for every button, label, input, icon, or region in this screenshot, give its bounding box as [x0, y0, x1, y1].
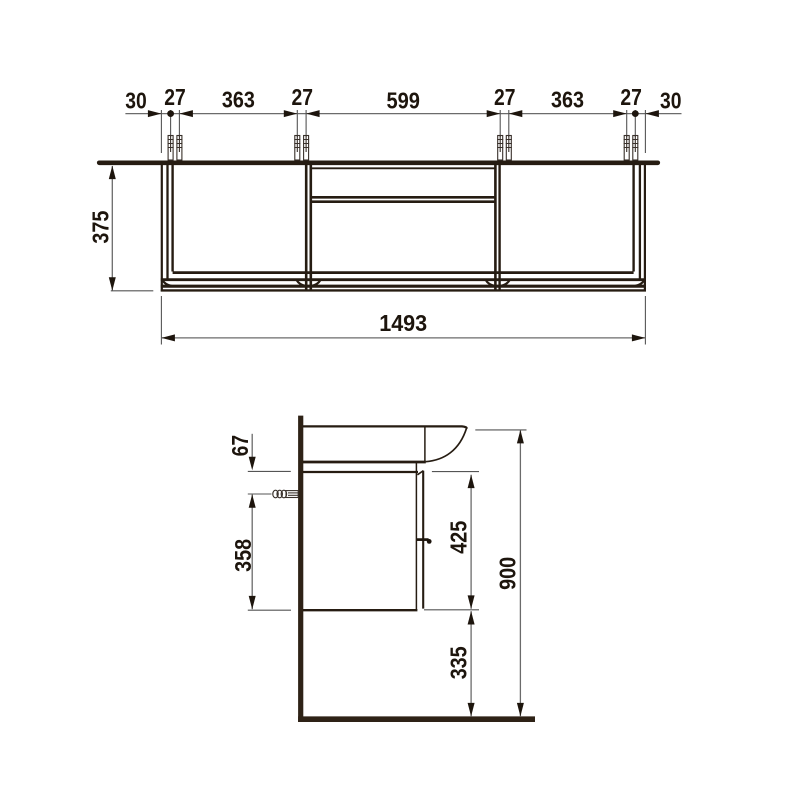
svg-text:27: 27 [494, 84, 516, 110]
svg-text:425: 425 [446, 521, 472, 554]
svg-text:1493: 1493 [379, 310, 427, 336]
svg-text:363: 363 [222, 87, 255, 113]
svg-text:27: 27 [164, 84, 186, 110]
svg-text:335: 335 [446, 646, 472, 679]
svg-text:599: 599 [386, 88, 420, 114]
svg-text:27: 27 [291, 84, 313, 110]
svg-text:67: 67 [227, 435, 253, 457]
svg-text:30: 30 [125, 88, 147, 114]
svg-text:375: 375 [88, 211, 114, 244]
svg-text:30: 30 [660, 88, 682, 114]
svg-text:358: 358 [230, 539, 256, 572]
svg-text:900: 900 [495, 557, 521, 590]
svg-text:27: 27 [620, 84, 642, 110]
svg-text:363: 363 [551, 87, 584, 113]
